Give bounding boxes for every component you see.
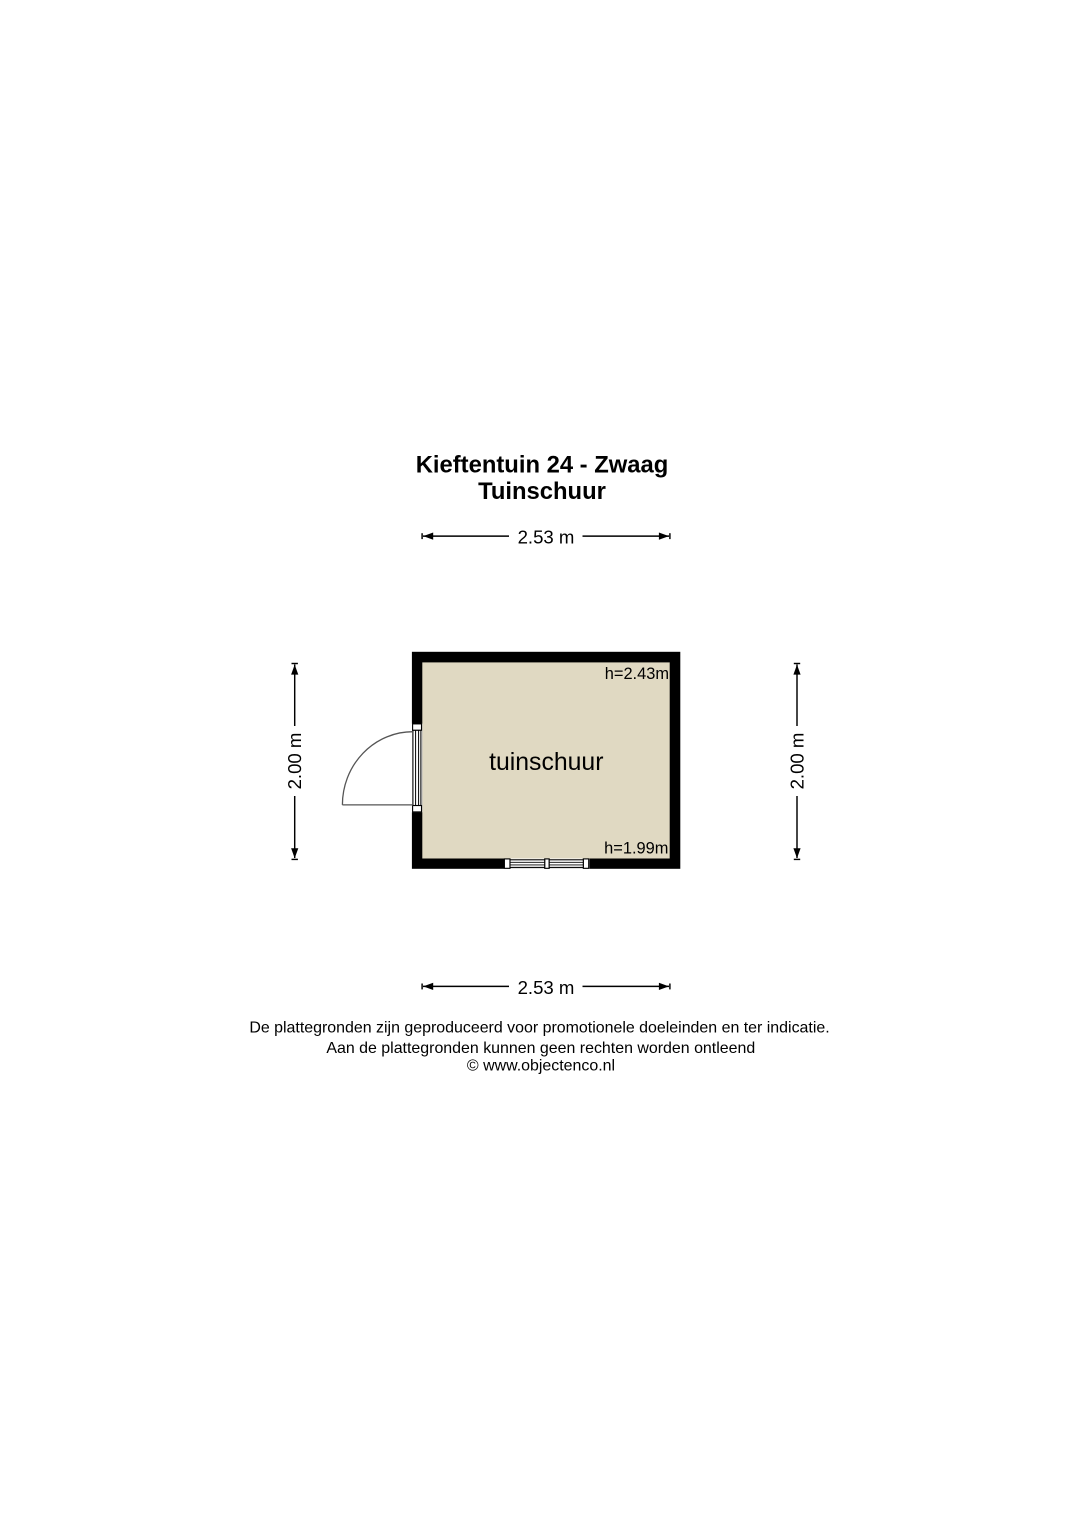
svg-text:2.00 m: 2.00 m	[787, 733, 808, 790]
svg-text:2.53 m: 2.53 m	[518, 527, 575, 548]
svg-text:De plattegronden zijn geproduc: De plattegronden zijn geproduceerd voor …	[249, 1019, 829, 1036]
svg-text:h=2.43m: h=2.43m	[605, 665, 669, 683]
svg-text:© www.objectenco.nl: © www.objectenco.nl	[467, 1057, 615, 1074]
svg-text:tuinschuur: tuinschuur	[489, 749, 603, 776]
svg-text:2.00 m: 2.00 m	[284, 733, 305, 790]
svg-text:Tuinschuur: Tuinschuur	[478, 478, 606, 505]
svg-text:h=1.99m: h=1.99m	[604, 839, 668, 857]
svg-text:2.53 m: 2.53 m	[518, 977, 575, 998]
svg-text:Kieftentuin 24 - Zwaag: Kieftentuin 24 - Zwaag	[416, 452, 669, 479]
svg-text:Aan de plattegronden kunnen ge: Aan de plattegronden kunnen geen rechten…	[326, 1040, 755, 1057]
